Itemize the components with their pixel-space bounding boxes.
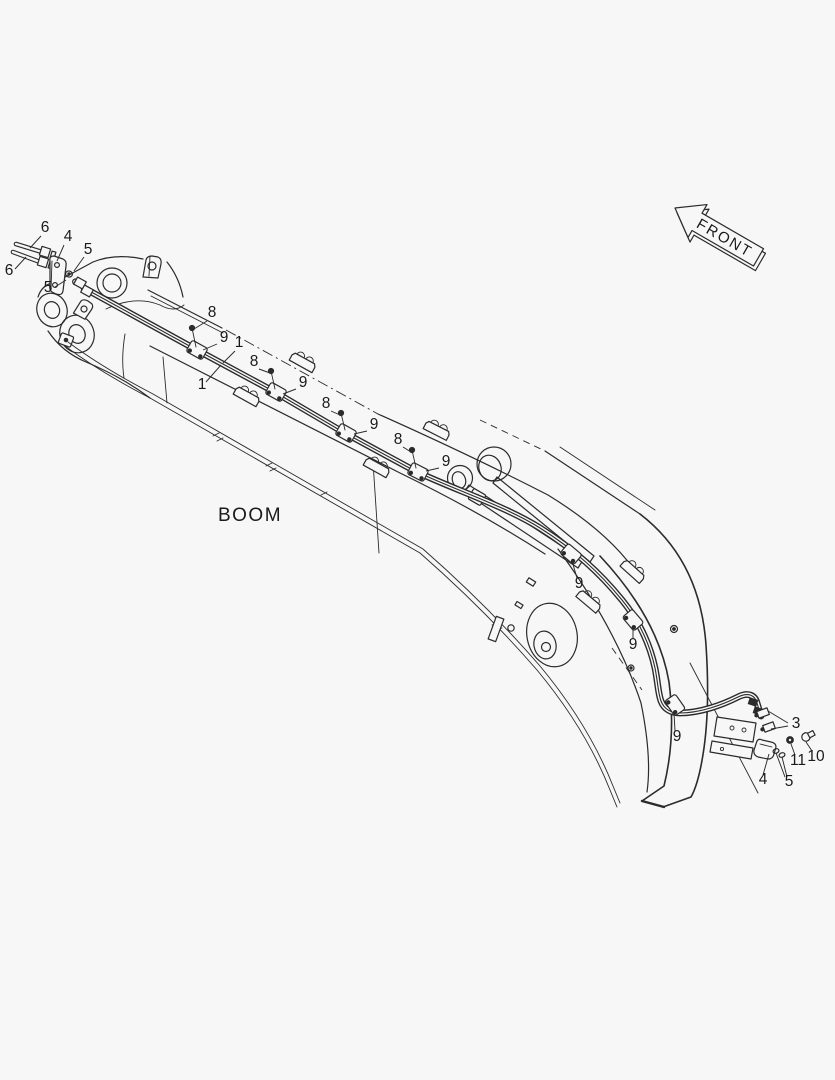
callout-label-1: 1 — [198, 376, 207, 393]
callout-leader-line — [30, 236, 41, 248]
callout-label-5: 5 — [44, 279, 53, 296]
callout-label-8: 8 — [250, 353, 259, 370]
callout-leader-line — [194, 321, 207, 329]
front-arrow: FRONT — [664, 192, 772, 278]
callout-label-6: 6 — [5, 262, 14, 279]
callout-label-4: 4 — [759, 771, 768, 788]
parts-diagram-page: 6456589118989899993101154 BOOM FRONT — [0, 0, 835, 1080]
clamp-bolts — [189, 325, 416, 468]
boom-far-edge — [545, 451, 640, 514]
callout-label-8: 8 — [322, 395, 331, 412]
callout-label-8: 8 — [208, 304, 217, 321]
callout-leader-line — [15, 257, 26, 269]
boom-label: BOOM — [218, 505, 282, 526]
foot-clevis-lug — [143, 256, 161, 278]
foot-lug — [73, 298, 94, 321]
callout-label-9: 9 — [220, 329, 229, 346]
boom-front-edge — [150, 346, 545, 554]
pipe-start-fittings — [50, 256, 94, 297]
callout-leader-line — [768, 711, 788, 723]
u-bracket — [754, 739, 776, 759]
callout-label-9: 9 — [629, 636, 638, 653]
callout-label-4: 4 — [64, 228, 73, 245]
boom-structure — [32, 256, 758, 807]
callout-label-5: 5 — [84, 241, 93, 258]
callout-label-8: 8 — [394, 431, 403, 448]
callout-label-3: 3 — [792, 715, 801, 732]
callout-label-9: 9 — [370, 416, 379, 433]
callout-leader-line — [223, 351, 235, 363]
callout-labels: 6456589118989899993101154 — [5, 219, 825, 790]
boom-piping-diagram: 6456589118989899993101154 BOOM FRONT — [0, 0, 835, 1080]
callout-label-9: 9 — [575, 575, 584, 592]
bolt — [800, 729, 816, 743]
callout-label-11: 11 — [790, 752, 806, 769]
boom-side-boss — [521, 599, 583, 672]
callout-label-9: 9 — [299, 374, 308, 391]
callout-label-10: 10 — [807, 748, 825, 765]
callout-label-1: 1 — [235, 334, 244, 351]
callout-label-5: 5 — [785, 773, 794, 790]
callout-leader-line — [206, 365, 221, 382]
callout-label-9: 9 — [442, 453, 451, 470]
callout-label-6: 6 — [41, 219, 50, 236]
callout-label-9: 9 — [673, 728, 682, 745]
main-pipe-run — [84, 288, 761, 716]
hydraulic-pipes — [13, 244, 816, 759]
